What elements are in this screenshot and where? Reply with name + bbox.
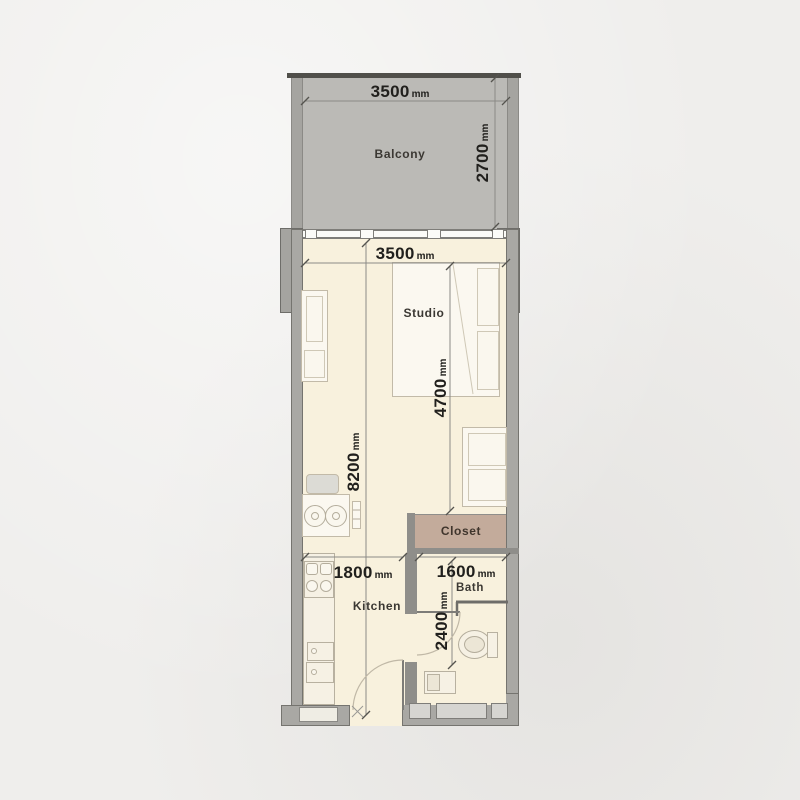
dim-unit: mm bbox=[439, 592, 450, 610]
dim-value: 8200 bbox=[344, 452, 363, 491]
service-shaft bbox=[409, 703, 431, 719]
dim-balcony-depth: 2700mm bbox=[474, 98, 492, 208]
kitchen-label: Kitchen bbox=[327, 599, 427, 613]
console-shelf bbox=[306, 296, 323, 342]
bath-wall-lower bbox=[405, 662, 417, 705]
dim-value: 2400 bbox=[432, 611, 451, 650]
service-shaft bbox=[436, 703, 487, 719]
dim-bath-width: 1600mm bbox=[406, 562, 526, 582]
dim-unit: mm bbox=[480, 124, 491, 142]
sink-drain bbox=[311, 648, 317, 654]
dim-value: 3500 bbox=[371, 82, 410, 101]
closet-label: Closet bbox=[411, 524, 511, 538]
dim-overall-length: 8200mm bbox=[345, 402, 363, 522]
balcony-left-wall bbox=[291, 78, 303, 231]
dim-bath-depth: 2400mm bbox=[433, 566, 451, 676]
dim-unit: mm bbox=[351, 433, 362, 451]
dim-balcony-width: 3500mm bbox=[340, 82, 460, 102]
dim-unit: mm bbox=[417, 251, 435, 262]
sofa-cushion bbox=[468, 433, 506, 466]
service-shaft bbox=[491, 703, 508, 719]
dim-unit: mm bbox=[438, 359, 449, 377]
console-shelf bbox=[304, 350, 325, 378]
window-mullion bbox=[305, 229, 317, 239]
dim-unit: mm bbox=[412, 89, 430, 100]
entrance-floor bbox=[350, 703, 402, 726]
balcony-right-wall bbox=[507, 78, 519, 231]
dim-value: 3500 bbox=[376, 244, 415, 263]
vanity-basin bbox=[427, 674, 440, 691]
sink-drain bbox=[311, 669, 317, 675]
floorplan-canvas: Balcony Studio Kitchen Bath Closet 3500m… bbox=[0, 0, 800, 800]
dining-chair bbox=[306, 474, 339, 494]
toilet-tank bbox=[487, 632, 498, 658]
balcony-label: Balcony bbox=[345, 147, 455, 161]
dim-unit: mm bbox=[375, 570, 393, 581]
dim-kitchen-width: 1800mm bbox=[303, 563, 423, 583]
closet-wall-bottom bbox=[407, 548, 519, 554]
bed-pillow bbox=[477, 331, 499, 390]
sofa-cushion bbox=[468, 469, 506, 501]
dim-studio-length: 4700mm bbox=[432, 333, 450, 443]
dim-value: 4700 bbox=[431, 378, 450, 417]
window-mullion bbox=[427, 229, 441, 239]
window-mullion bbox=[492, 229, 504, 239]
dim-value: 2700 bbox=[473, 143, 492, 182]
bed-pillow bbox=[477, 268, 499, 326]
wall-right bbox=[506, 229, 519, 726]
window-mullion bbox=[360, 229, 374, 239]
bottom-wall-niche bbox=[299, 707, 338, 722]
studio-label: Studio bbox=[374, 306, 474, 320]
dim-unit: mm bbox=[478, 569, 496, 580]
balcony-sliding-door bbox=[303, 229, 506, 239]
place-setting-inner bbox=[332, 512, 340, 520]
dim-studio-width: 3500mm bbox=[345, 244, 465, 264]
place-setting-inner bbox=[311, 512, 319, 520]
dim-value: 1800 bbox=[334, 563, 373, 582]
toilet-bowl-inner bbox=[464, 636, 485, 653]
